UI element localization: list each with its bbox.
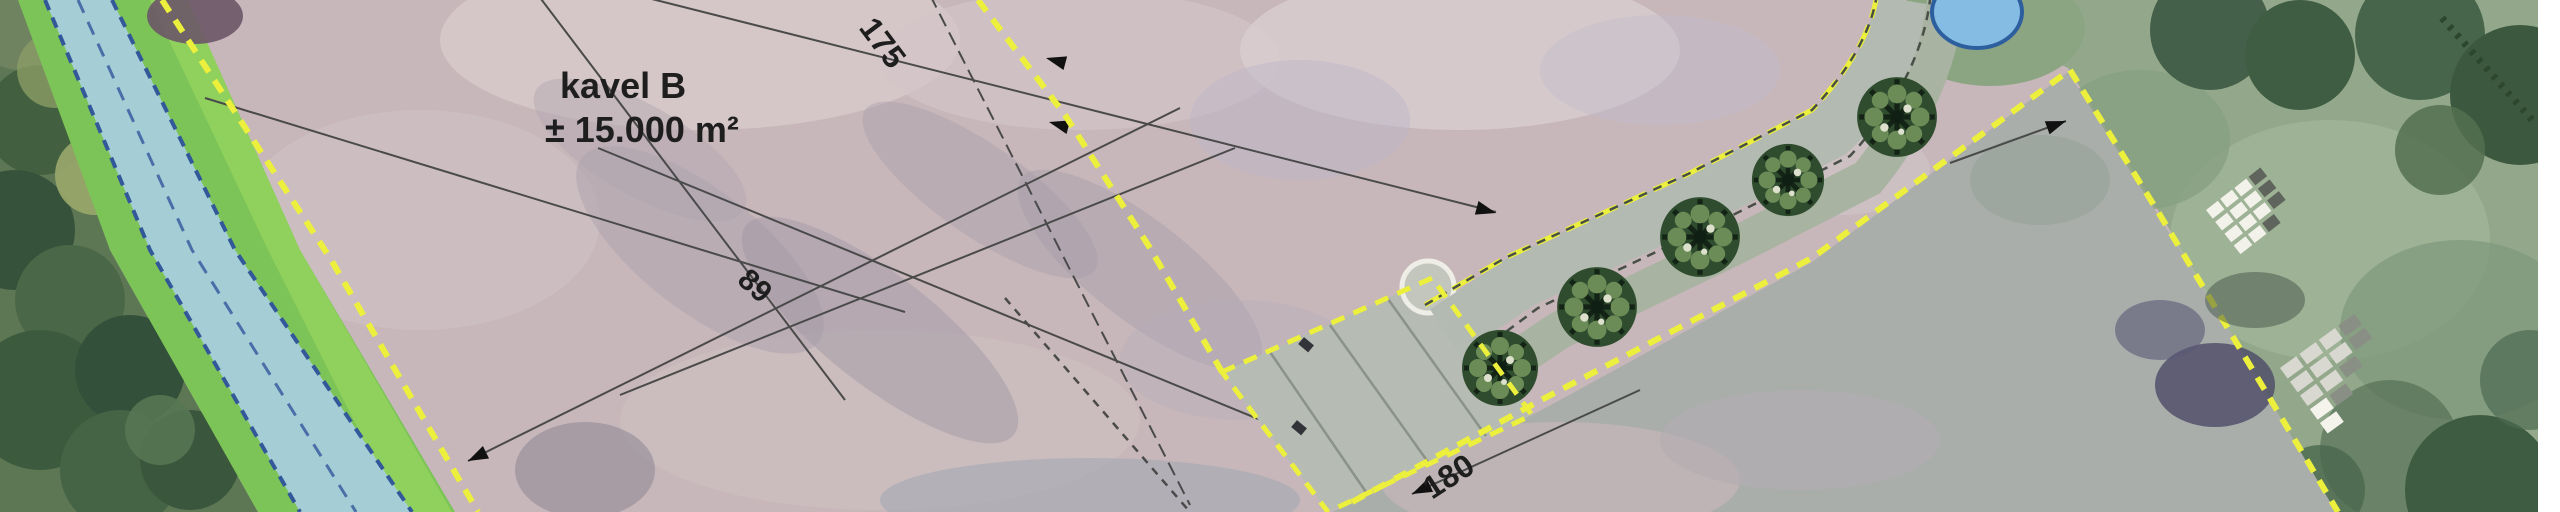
parcel-name-label: kavel B: [560, 65, 686, 106]
parcel-area-label: ± 15.000 m²: [545, 109, 739, 150]
site-plan-canvas: kavel B ± 15.000 m² 175 89 180: [0, 0, 2560, 512]
site-plan-map[interactable]: kavel B ± 15.000 m² 175 89 180: [0, 0, 2560, 512]
page-margin-strip: [2538, 0, 2560, 512]
